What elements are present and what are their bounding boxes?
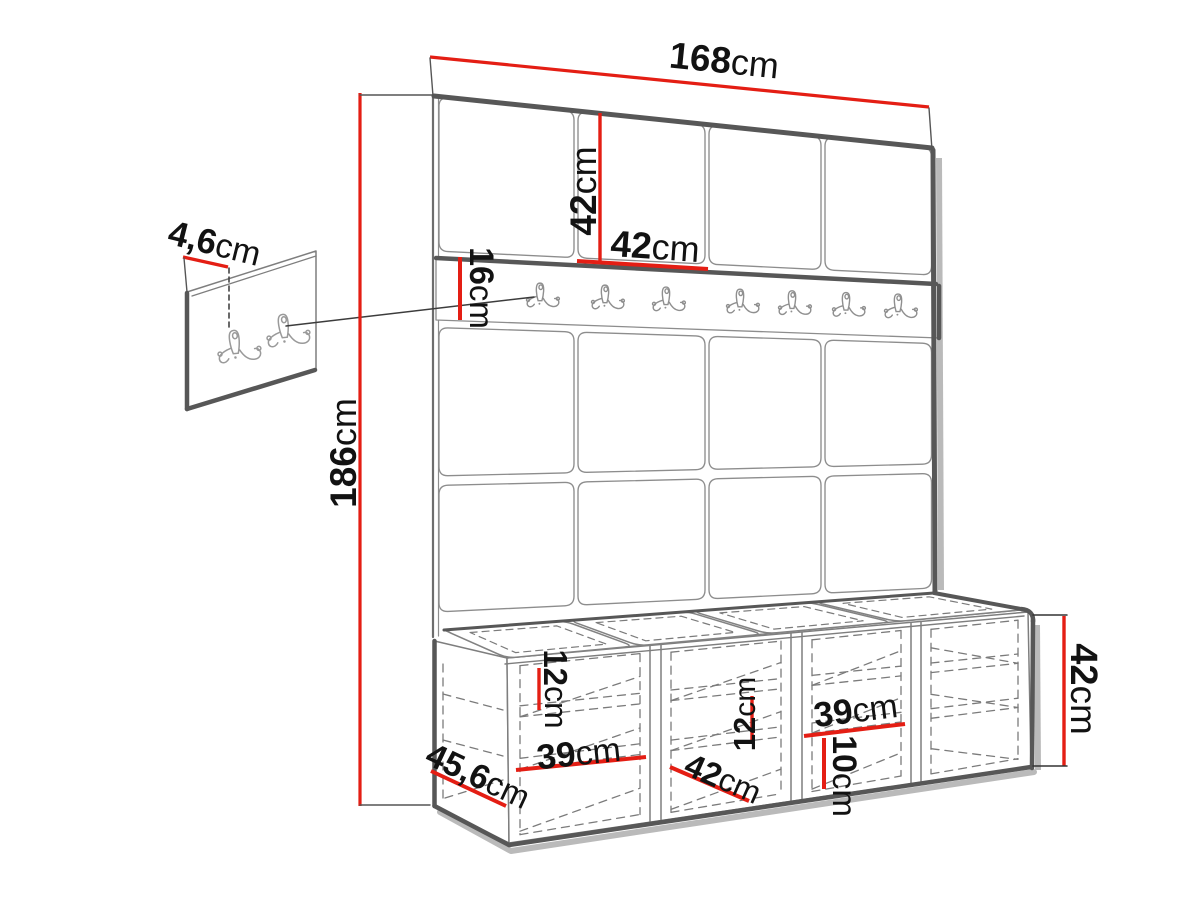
svg-text:10cm: 10cm	[825, 735, 863, 817]
svg-text:186cm: 186cm	[323, 398, 364, 508]
svg-text:12cm: 12cm	[537, 649, 574, 728]
svg-text:42cm: 42cm	[1062, 643, 1104, 735]
svg-text:42cm: 42cm	[609, 222, 701, 269]
svg-text:12cm: 12cm	[727, 677, 762, 751]
svg-text:16cm: 16cm	[462, 247, 500, 329]
svg-text:42cm: 42cm	[563, 146, 604, 235]
